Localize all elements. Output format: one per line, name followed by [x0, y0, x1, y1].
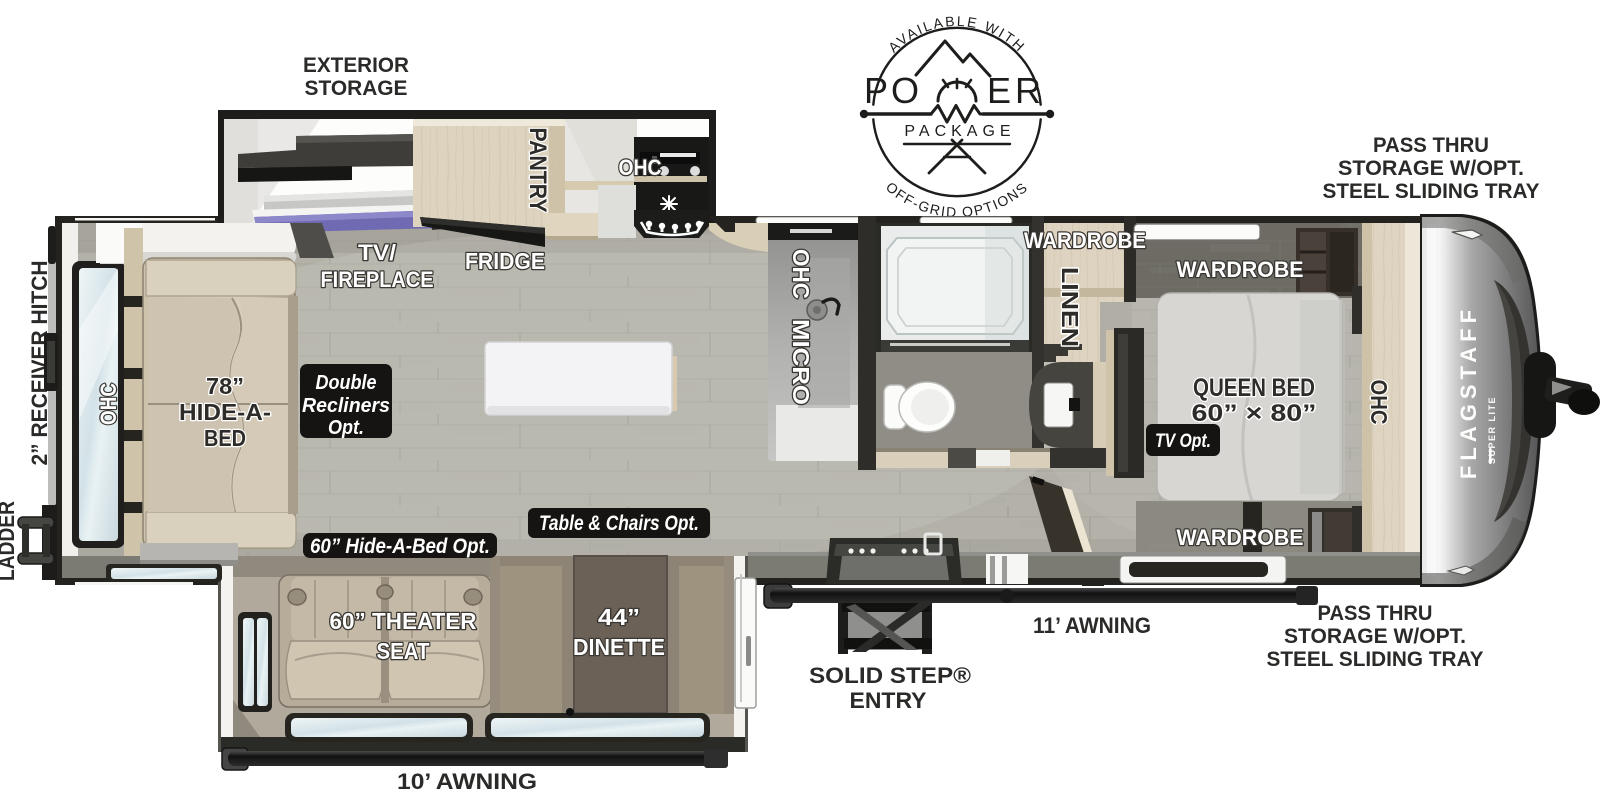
svg-text:BED: BED — [204, 425, 246, 451]
svg-text:STEEL SLIDING TRAY: STEEL SLIDING TRAY — [1323, 180, 1540, 203]
svg-text:WARDROBE: WARDROBE — [1177, 525, 1304, 550]
svg-text:WARDROBE: WARDROBE — [1177, 257, 1304, 282]
svg-text:HIDE-A-: HIDE-A- — [179, 399, 271, 425]
svg-text:Opt.: Opt. — [328, 417, 364, 439]
svg-text:STEEL SLIDING TRAY: STEEL SLIDING TRAY — [1267, 648, 1484, 671]
svg-text:WARDROBE: WARDROBE — [1024, 228, 1146, 253]
svg-text:Recliners: Recliners — [302, 395, 390, 417]
svg-text:OHC: OHC — [1366, 380, 1392, 425]
svg-text:FIREPLACE: FIREPLACE — [321, 267, 434, 292]
svg-text:Table & Chairs Opt.: Table & Chairs Opt. — [539, 512, 699, 535]
svg-text:EXTERIOR: EXTERIOR — [303, 54, 409, 77]
svg-text:LINEN: LINEN — [1057, 267, 1083, 347]
svg-text:60” THEATER: 60” THEATER — [330, 608, 477, 634]
svg-text:FLAGSTAFF: FLAGSTAFF — [1456, 305, 1481, 479]
svg-text:10’ AWNING: 10’ AWNING — [397, 769, 537, 794]
svg-text:60” × 80”: 60” × 80” — [1192, 400, 1317, 427]
svg-text:LADDER: LADDER — [0, 501, 19, 581]
svg-text:MICRO: MICRO — [788, 319, 814, 405]
svg-text:DINETTE: DINETTE — [573, 634, 665, 660]
svg-text:P: P — [864, 70, 888, 111]
svg-text:PASS THRU: PASS THRU — [1318, 602, 1433, 625]
svg-text:TV Opt.: TV Opt. — [1155, 431, 1211, 452]
svg-text:OHC: OHC — [619, 155, 662, 180]
svg-text:11’ AWNING: 11’ AWNING — [1033, 613, 1151, 638]
svg-text:OHC: OHC — [788, 249, 814, 299]
svg-text:FRIDGE: FRIDGE — [465, 248, 545, 274]
svg-text:O: O — [891, 70, 919, 111]
svg-text:STORAGE W/OPT.: STORAGE W/OPT. — [1338, 157, 1524, 180]
svg-text:STORAGE W/OPT.: STORAGE W/OPT. — [1284, 625, 1466, 648]
svg-text:78”: 78” — [206, 373, 244, 399]
svg-text:E: E — [987, 70, 1011, 111]
svg-text:SUPER LITE: SUPER LITE — [1487, 396, 1497, 464]
svg-text:TV/: TV/ — [358, 240, 396, 265]
svg-text:PANTRY: PANTRY — [524, 128, 551, 213]
svg-text:SEAT: SEAT — [377, 638, 430, 664]
svg-text:OHC: OHC — [96, 383, 121, 425]
svg-text:ENTRY: ENTRY — [850, 688, 927, 713]
svg-text:PACKAGE: PACKAGE — [904, 123, 1015, 140]
svg-text:QUEEN BED: QUEEN BED — [1193, 374, 1315, 402]
svg-text:SOLID STEP®: SOLID STEP® — [809, 663, 971, 688]
svg-text:44”: 44” — [598, 604, 640, 630]
svg-text:Double: Double — [316, 372, 377, 394]
svg-text:STORAGE: STORAGE — [305, 77, 408, 100]
svg-text:R: R — [1015, 70, 1041, 111]
svg-text:PASS THRU: PASS THRU — [1373, 134, 1489, 157]
svg-text:60” Hide-A-Bed Opt.: 60” Hide-A-Bed Opt. — [310, 535, 490, 558]
